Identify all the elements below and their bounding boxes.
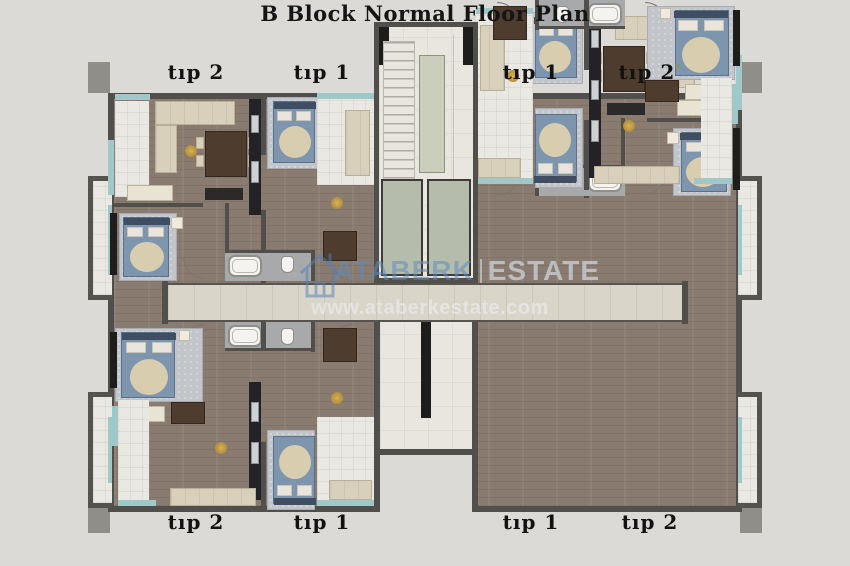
bed <box>123 217 169 277</box>
bed-headboard <box>122 333 176 340</box>
desk <box>127 185 173 201</box>
console-bench <box>607 103 645 115</box>
sofa-chaise <box>155 125 177 173</box>
tv-unit <box>323 231 357 261</box>
sofa <box>594 166 680 184</box>
nightstand <box>667 132 679 144</box>
unit-label-text: tıp 2 <box>619 60 676 84</box>
corner-cap <box>740 507 762 533</box>
console-bench <box>205 188 243 200</box>
unit-label: tıp 1 <box>503 510 560 534</box>
bed-pillow <box>277 485 292 496</box>
balcony-sofa <box>345 110 370 176</box>
bed-pillow <box>538 163 553 174</box>
window-strip <box>738 417 742 483</box>
bed-headboard <box>274 102 316 109</box>
kitchen-counter <box>589 60 601 178</box>
bed-pillow <box>152 342 172 353</box>
bathtub <box>228 325 262 347</box>
sink <box>251 115 259 133</box>
elevator-shaft <box>419 55 445 173</box>
interior-wall <box>311 322 315 352</box>
lobby-wall <box>421 322 431 418</box>
bed-pillow <box>558 163 573 174</box>
balcony-sofa <box>329 480 372 500</box>
interior-wall <box>311 250 315 281</box>
sink <box>591 30 599 48</box>
sink <box>591 80 599 100</box>
bed-blanket <box>130 242 164 272</box>
stove <box>251 442 259 464</box>
setback-area <box>380 455 472 517</box>
bed-headboard <box>274 498 316 505</box>
bed <box>535 114 577 182</box>
window-strip <box>108 140 114 195</box>
toilet <box>281 256 294 273</box>
unit-label-text: tıp 1 <box>294 510 351 534</box>
lobby-side-wall <box>472 322 478 512</box>
balcony <box>701 78 732 182</box>
balcony <box>115 101 149 197</box>
sofa <box>170 488 256 506</box>
unit-label: tıp 1 <box>294 510 351 534</box>
balcony-sofa <box>478 158 521 178</box>
chandelier <box>331 197 343 209</box>
kitchen-counter <box>249 382 261 500</box>
door-swing <box>183 257 205 279</box>
bed-blanket <box>279 126 311 158</box>
unit-label: tıp 2* <box>619 60 682 84</box>
dining-chair <box>196 155 204 167</box>
unit-label: tıp 2 <box>168 510 225 534</box>
unit-label: tıp 2 <box>168 60 225 84</box>
unit-label-text: tıp 2 <box>168 510 225 534</box>
bathtub <box>228 255 262 277</box>
unit-label: tıp 1 <box>503 60 560 84</box>
window-strip <box>317 500 374 506</box>
unit-label-text: tıp 1 <box>503 60 560 84</box>
window-strip <box>112 406 118 446</box>
wardrobe <box>733 128 740 190</box>
core-corner-wall <box>463 27 473 65</box>
floor-plan: B Block Normal Floor Plan <box>0 0 850 566</box>
corner-cap <box>740 62 762 93</box>
unit-label-text: tıp 2 <box>168 60 225 84</box>
unit-label: tıp 1 <box>294 60 351 84</box>
interior-wall <box>225 348 315 351</box>
bed-pillow <box>686 142 702 152</box>
toilet <box>281 328 294 345</box>
window-strip <box>115 94 150 100</box>
bed-blanket <box>682 37 720 73</box>
unit-label: tıp 2 <box>622 510 679 534</box>
interior-wall <box>535 26 625 29</box>
chandelier <box>331 392 343 404</box>
stove <box>251 161 259 183</box>
interior-wall <box>225 250 315 253</box>
sink <box>251 402 259 422</box>
bed-headboard <box>534 176 576 183</box>
bed-pillow <box>277 111 292 121</box>
bed <box>273 101 315 163</box>
chandelier <box>623 120 635 132</box>
interior-wall <box>114 203 203 207</box>
interior-wall <box>225 203 229 255</box>
chandelier <box>185 145 197 157</box>
unit-label-note: * <box>675 63 681 74</box>
balcony <box>118 400 149 504</box>
staircase <box>383 41 415 181</box>
bed-blanket <box>539 123 571 157</box>
unit-divider-wall <box>584 120 589 190</box>
window-strip <box>317 93 374 99</box>
corridor-end-wall <box>682 281 688 324</box>
balcony-wing <box>738 392 762 508</box>
bed-pillow <box>296 111 311 121</box>
door-swing <box>331 259 353 281</box>
bed-headboard <box>124 218 170 225</box>
bed <box>121 332 175 398</box>
window-strip <box>738 205 742 275</box>
shaft-room <box>427 179 471 276</box>
dining-chair <box>196 137 204 149</box>
window-strip <box>732 84 738 124</box>
unit-divider-wall <box>261 442 266 512</box>
core-line <box>453 35 454 180</box>
bed-pillow <box>148 227 164 237</box>
unit-label-text: tıp 1 <box>294 60 351 84</box>
bed-pillow <box>297 485 312 496</box>
window-strip <box>694 178 732 184</box>
bed-pillow <box>126 342 146 353</box>
nightstand <box>179 330 190 341</box>
unit-label-text: tıp 2 <box>622 510 679 534</box>
bed-blanket <box>279 445 311 479</box>
sofa <box>155 101 235 125</box>
bed-blanket <box>130 359 168 395</box>
unit-divider-wall <box>261 322 266 348</box>
wardrobe <box>110 332 117 388</box>
wardrobe <box>110 213 117 275</box>
dining-table <box>205 131 247 177</box>
bed <box>273 436 315 504</box>
window-strip <box>476 178 533 184</box>
plan-title: B Block Normal Floor Plan <box>0 1 850 26</box>
shaft-room <box>381 179 423 276</box>
corridor <box>168 283 682 322</box>
stove <box>591 120 599 142</box>
unit-label-text: tıp 1 <box>503 510 560 534</box>
nightstand <box>171 217 183 229</box>
tv-unit <box>323 328 357 362</box>
bed-pillow <box>127 227 143 237</box>
balcony-wing <box>738 176 762 300</box>
chandelier <box>215 442 227 454</box>
corridor-end-wall <box>162 281 168 324</box>
stair-core <box>374 22 478 283</box>
window-strip <box>118 500 156 506</box>
coffee-table <box>171 402 205 424</box>
unit-divider-wall <box>261 93 266 155</box>
